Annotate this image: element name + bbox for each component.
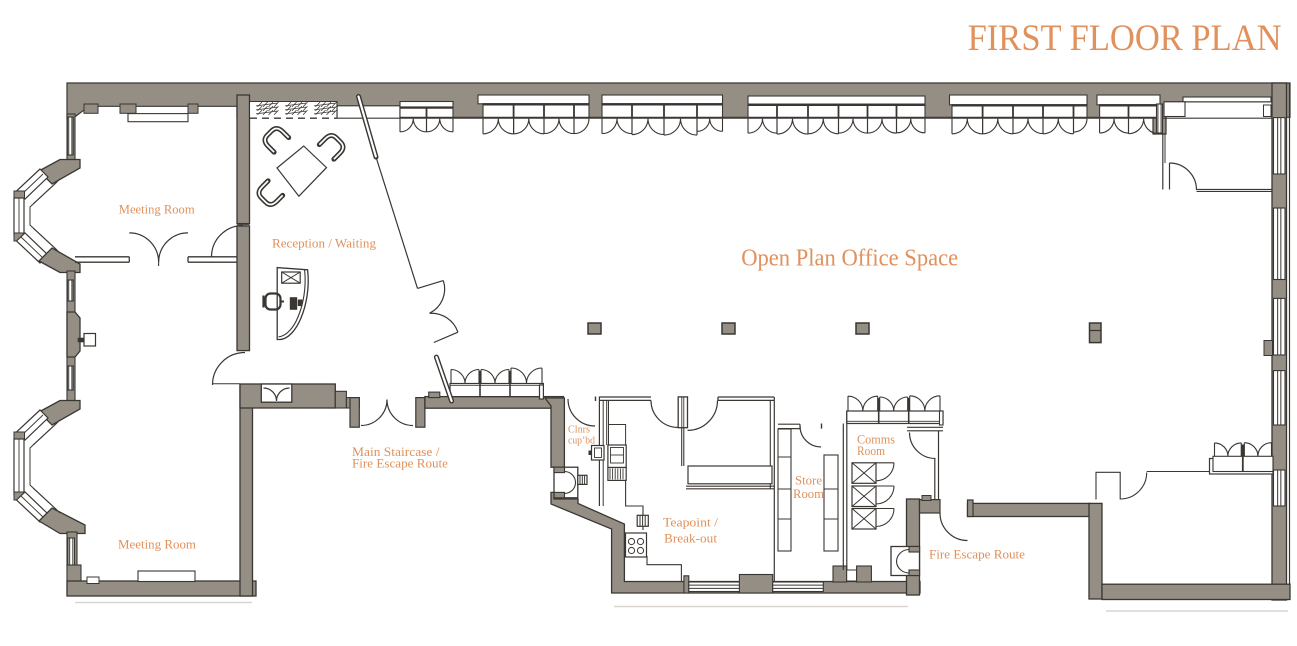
svg-text:cup’bd: cup’bd: [568, 436, 595, 447]
svg-text:Meeting Room: Meeting Room: [119, 202, 195, 217]
svg-text:Reception / Waiting: Reception / Waiting: [272, 236, 376, 251]
svg-text:Room: Room: [857, 444, 885, 458]
svg-text:Teapoint /: Teapoint /: [663, 515, 718, 530]
svg-text:FIRST FLOOR PLAN: FIRST FLOOR PLAN: [968, 18, 1282, 59]
svg-text:Fire Escape Route: Fire Escape Route: [929, 547, 1025, 562]
svg-text:Fire Escape Route: Fire Escape Route: [352, 455, 448, 470]
svg-text:Meeting Room: Meeting Room: [118, 537, 196, 552]
svg-text:Room: Room: [793, 486, 824, 501]
svg-text:Break-out: Break-out: [664, 531, 717, 546]
svg-text:Open Plan Office Space: Open Plan Office Space: [741, 245, 958, 272]
svg-text:Clnrs: Clnrs: [568, 425, 590, 436]
